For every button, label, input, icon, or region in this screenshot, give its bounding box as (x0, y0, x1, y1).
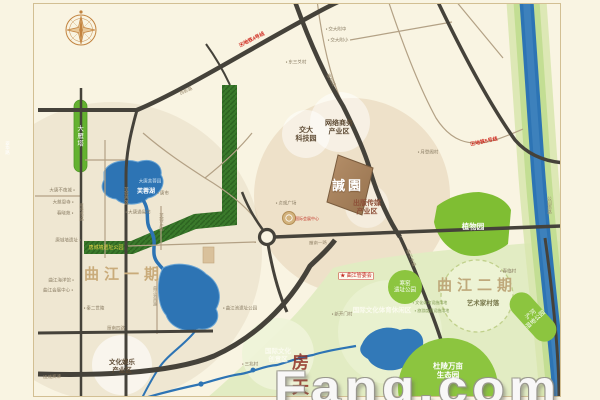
gold-landmark-circle (283, 212, 296, 225)
hanyao-park-circle (388, 270, 422, 304)
location-map: 房天下 Fang.com 曲江一期曲江二期諴園交大 科技园网络商务 产业区出版传… (0, 0, 600, 400)
map-canvas (0, 0, 600, 400)
building-block (203, 247, 214, 263)
roundabout (260, 230, 275, 245)
artist-village-dashed-circle (441, 260, 513, 332)
